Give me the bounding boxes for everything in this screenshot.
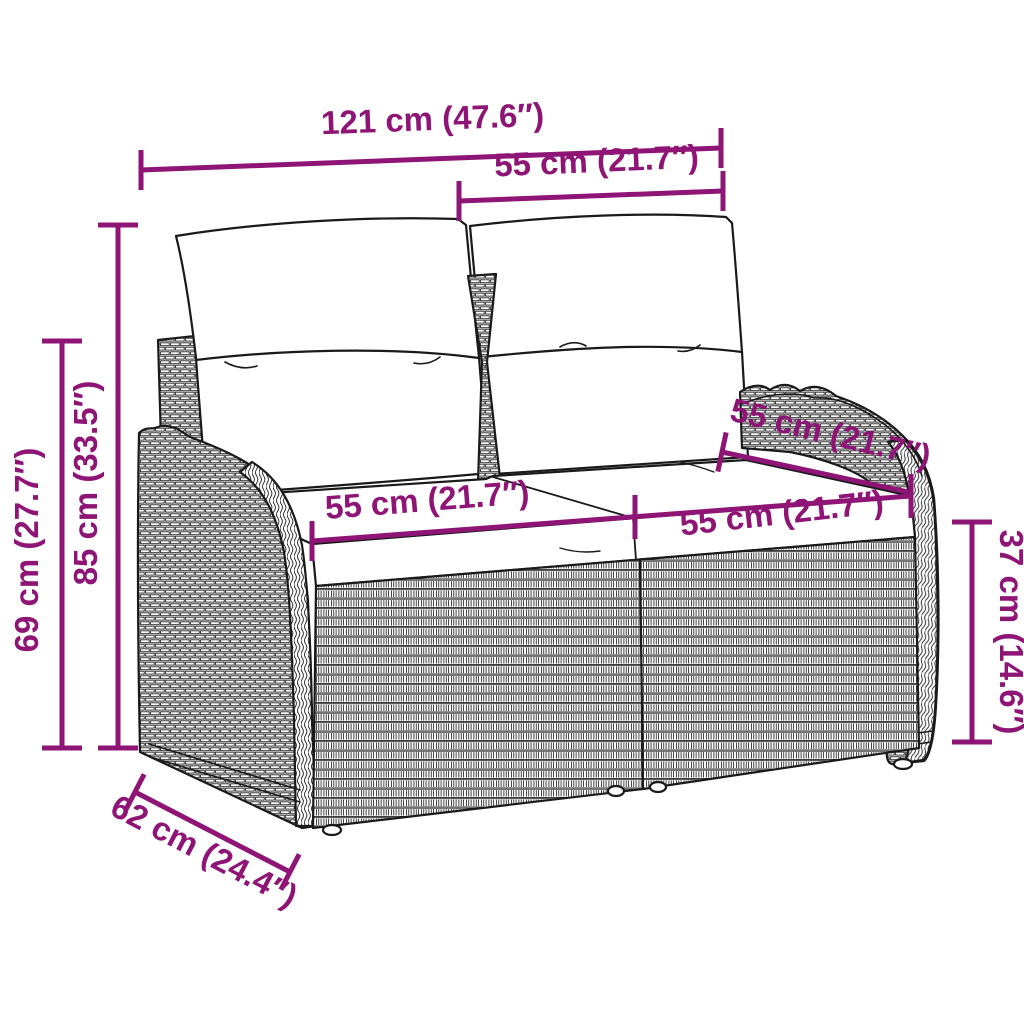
dimension-total-height-label: 85 cm (33.5″) (67, 381, 104, 586)
dimension-total-height: 85 cm (33.5″) (67, 225, 138, 748)
dimension-overall-width-label: 121 cm (47.6″) (320, 96, 544, 142)
dimension-seat-height: 37 cm (14.6″) (952, 522, 1024, 742)
diagram-page: 121 cm (47.6″) 55 cm (21.7″) 85 cm (33.5… (0, 0, 1024, 1024)
bench-dimension-diagram: 121 cm (47.6″) 55 cm (21.7″) 85 cm (33.5… (0, 0, 1024, 1024)
dimension-seat-height-label: 37 cm (14.6″) (993, 530, 1024, 735)
front-panel (313, 537, 919, 828)
dimension-backrest-cushion-width-label: 55 cm (21.7″) (493, 138, 699, 184)
dimension-backrest-cushion-width: 55 cm (21.7″) (459, 138, 723, 221)
back-pillow-right (470, 215, 748, 474)
dimension-back-height-label: 69 cm (27.7″) (8, 448, 45, 653)
